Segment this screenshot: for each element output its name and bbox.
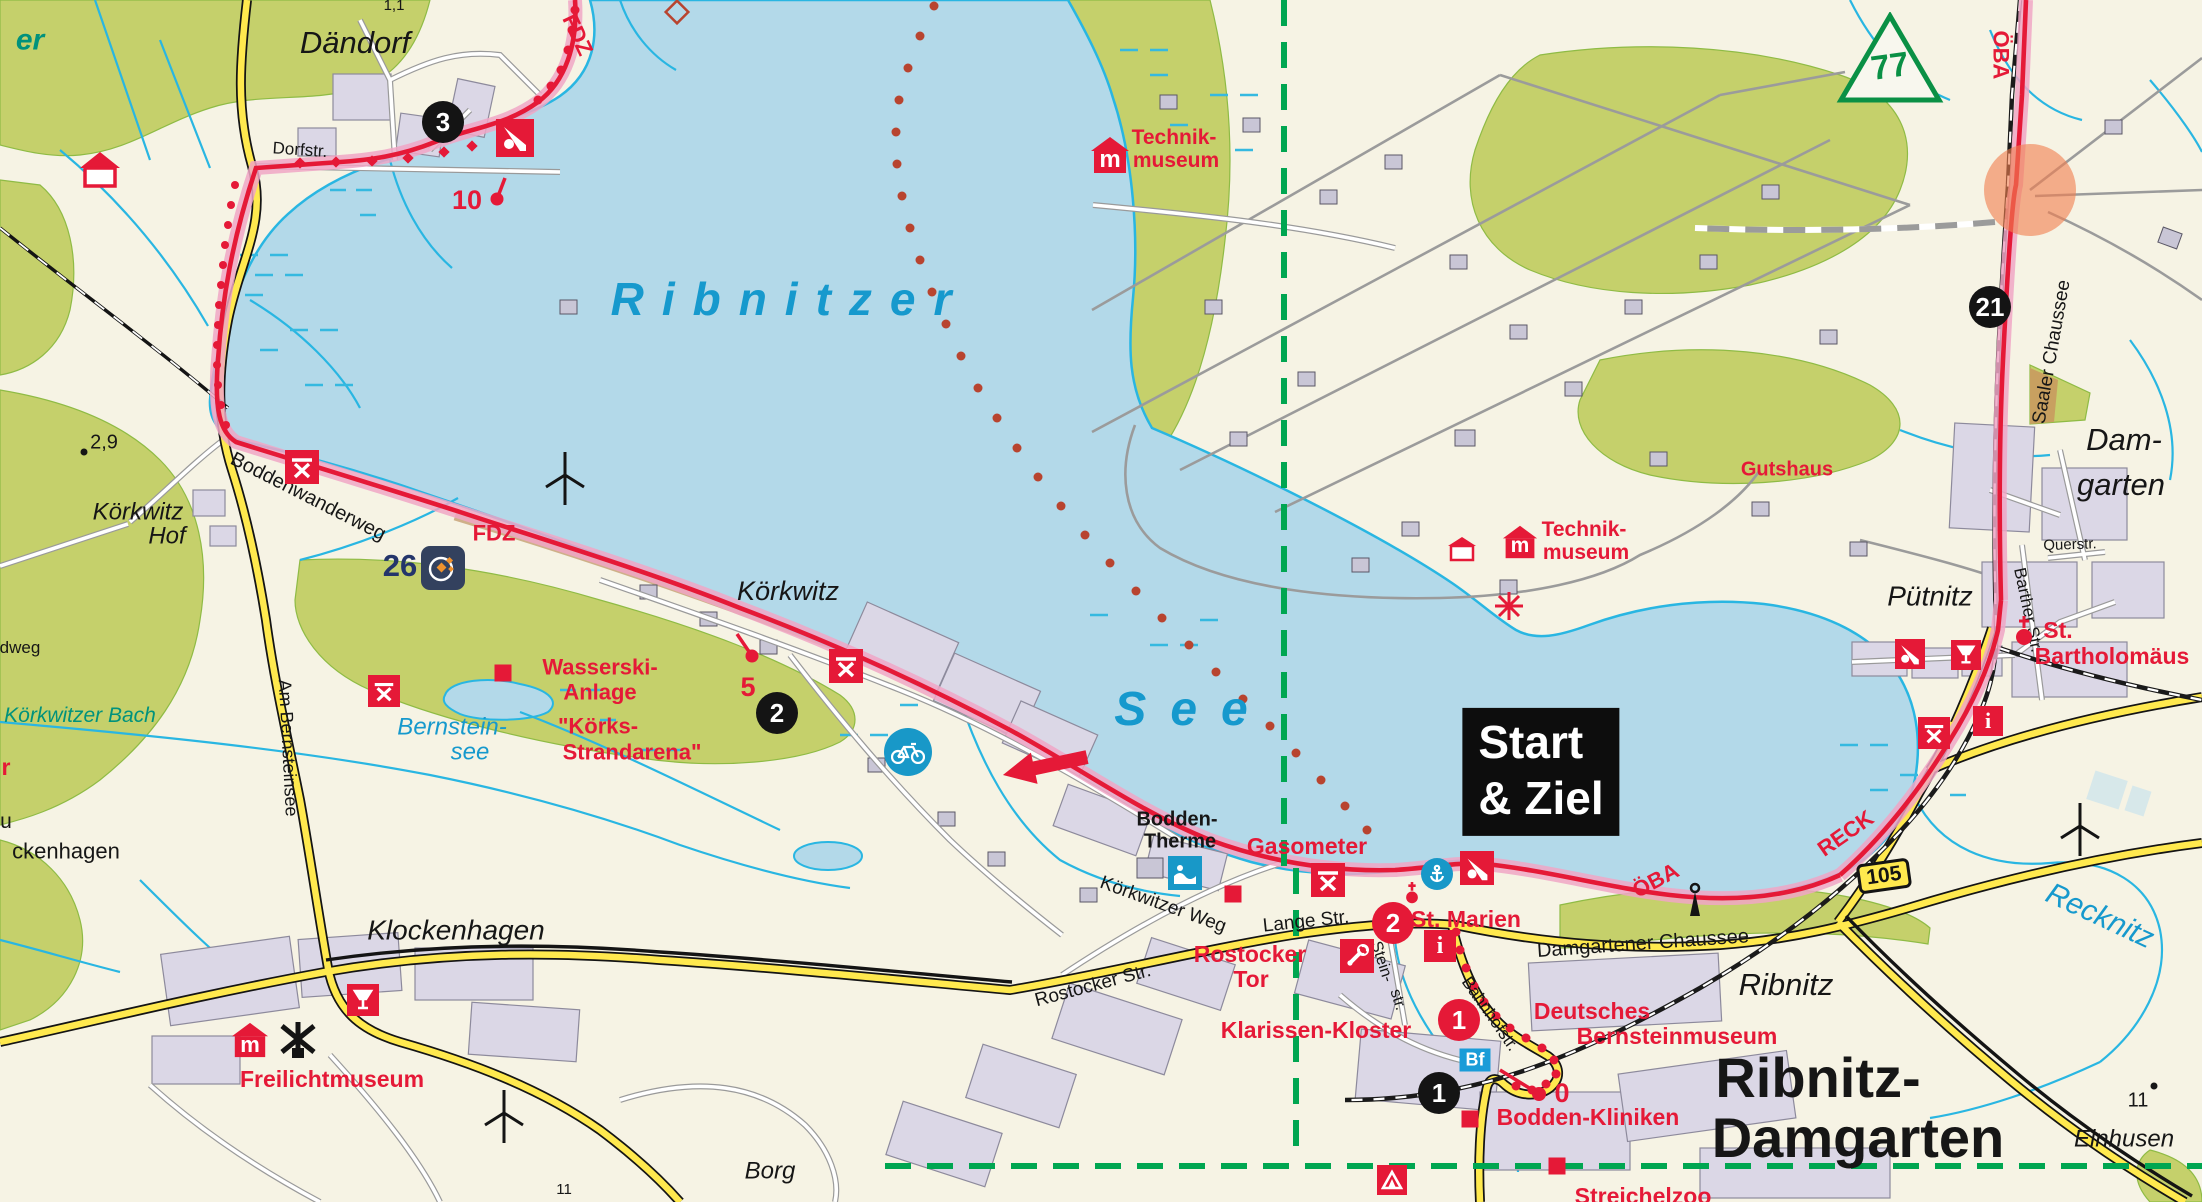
info-icon: i — [1973, 706, 2003, 736]
junction-highlight — [1984, 144, 2076, 236]
wet-areas — [2086, 770, 2151, 816]
route-fdz-mid: FDZ — [473, 523, 516, 546]
swimming-icon — [1168, 856, 1202, 890]
poi-streichelzoo: Streichelzoo — [1575, 1185, 1712, 1202]
poi-technikmuseum-a-2: museum — [1133, 150, 1219, 172]
poi-rostocker-tor-1: Rostocker — [1194, 943, 1306, 967]
route-oeba-top: ÖBA — [1989, 31, 2012, 80]
poi-bernsteinmuseum-1: Deutsches — [1534, 1000, 1650, 1024]
poi-wasserski-2: Anlage — [563, 682, 636, 705]
restaurant-icon — [347, 984, 379, 1016]
label-damgarten-2: garten — [2077, 469, 2165, 501]
poi-square — [495, 665, 512, 682]
node-marker-26: 26 — [383, 550, 417, 582]
label-ribnitz-damgarten-1: Ribnitz- — [1715, 1049, 1920, 1107]
station-badge-bf: Bf — [1460, 1049, 1491, 1072]
label-ribnitz: Ribnitz — [1739, 969, 1834, 1001]
poi-freilichtmuseum: Freilichtmuseum — [240, 1068, 424, 1092]
label-partial-dweg: dweg — [0, 639, 40, 657]
label-koerkwitz: Körkwitz — [737, 577, 839, 605]
water-slide-icon — [496, 119, 534, 157]
bike-repair-icon — [1340, 939, 1374, 973]
picnic-icon — [829, 649, 863, 683]
poi-rostocker-tor-2: Tor — [1233, 968, 1268, 992]
poi-square — [1462, 1111, 1479, 1128]
restaurant-icon — [1951, 640, 1981, 670]
route-marker-1-red: 1 — [1438, 999, 1480, 1041]
elevation-1-1: 1,1 — [384, 0, 405, 14]
poi-technikmuseum-b-1: Technik- — [1542, 519, 1627, 541]
poi-bodden-therme-2: Therme — [1144, 832, 1216, 853]
poi-st-bartholomaeus-2: Bartholomäus — [2035, 645, 2190, 669]
elevation-2-9: 2,9 — [90, 433, 118, 454]
label-ribnitz-damgarten-2: Damgarten — [1712, 1109, 2005, 1167]
route-triangle-77: 77 — [1835, 12, 1945, 104]
picnic-icon — [368, 675, 400, 707]
label-bernsteinsee-1: Bernstein- — [397, 716, 506, 741]
poi-technikmuseum-b-2: museum — [1543, 542, 1629, 564]
poi-gutshaus: Gutshaus — [1741, 460, 1833, 481]
windmill-icon — [282, 1022, 314, 1058]
poi-square — [1549, 1158, 1566, 1175]
poi-bernsteinmuseum-2: Bernsteinmuseum — [1577, 1025, 1778, 1049]
poi-st-bartholomaeus-1: St. — [2043, 619, 2072, 643]
label-ribnitzer-see-1: Ribnitzer — [611, 276, 970, 324]
picnic-icon — [1311, 863, 1345, 897]
poi-technikmuseum-a-1: Technik- — [1132, 127, 1217, 149]
poi-st-marien: St. Marien — [1411, 908, 1521, 932]
route-marker-3: 3 — [422, 101, 464, 143]
label-daendorf: Dändorf — [300, 27, 410, 59]
label-puetnitz: Pütnitz — [1887, 581, 1973, 610]
map-geometry — [0, 0, 2202, 1202]
label-damgarten-1: Dam- — [2086, 424, 2162, 456]
label-ribnitzer-see-2: See — [1114, 685, 1271, 735]
poi-square — [1225, 886, 1242, 903]
info-icon: i — [1424, 930, 1456, 962]
elevation-11-borg: 11 — [556, 1182, 572, 1198]
start-finish-line2: & Ziel — [1478, 770, 1603, 826]
poi-koerks-1: "Körks- — [558, 716, 638, 739]
street-dorfstr: Dorfstr. — [272, 139, 328, 160]
label-klockenhagen: Klockenhagen — [367, 915, 544, 944]
label-partial-u: u — [0, 811, 12, 833]
label-einhusen: Einhusen — [2074, 1128, 2174, 1153]
label-bernsteinsee-2: see — [451, 741, 490, 766]
picnic-icon — [285, 450, 319, 484]
red-house-icon — [78, 150, 122, 190]
label-borg: Borg — [745, 1160, 796, 1185]
route-marker-21: 21 — [1969, 286, 2011, 328]
viewpoint-star-icon — [1494, 591, 1524, 621]
water-slide-icon — [1895, 639, 1925, 669]
start-finish-box: Start & Ziel — [1462, 708, 1619, 836]
museum-icon: m — [230, 1021, 270, 1059]
museum-icon: m — [1501, 524, 1539, 560]
dark-sky-icon — [421, 546, 465, 590]
km-marker-10: 10 — [452, 186, 482, 214]
bicycle-icon — [884, 728, 932, 776]
picnic-icon — [1918, 717, 1950, 749]
route-marker-2-red: 2 — [1372, 902, 1414, 944]
label-partial-ckenhagen: ckenhagen — [12, 841, 120, 864]
church-icon — [2015, 616, 2033, 646]
barn-icon — [1447, 536, 1477, 562]
street-querstr: Querstr. — [2043, 536, 2097, 553]
pond — [794, 842, 862, 870]
route-marker-1-black: 1 — [1418, 1072, 1460, 1114]
church-icon — [1405, 882, 1419, 904]
label-partial-er: er — [16, 24, 44, 55]
km-marker-0: 0 — [1554, 1079, 1569, 1107]
elevation-11-east: 11 — [2128, 1091, 2149, 1112]
km-marker-5: 5 — [740, 673, 755, 701]
campground-icon — [1377, 1165, 1407, 1195]
poi-wasserski-1: Wasserski- — [542, 657, 657, 680]
poi-koerks-2: Strandarena" — [563, 742, 702, 765]
label-partial-r: r — [2, 756, 11, 780]
anchor-icon — [1421, 858, 1453, 890]
poi-bodden-therme-1: Bodden- — [1136, 810, 1217, 831]
label-koerkwitzer-bach: Körkwitzer Bach — [4, 705, 156, 727]
museum-icon: m — [1089, 135, 1131, 175]
water-slide-icon — [1460, 851, 1494, 885]
poi-bodden-kliniken: Bodden-Kliniken — [1497, 1106, 1680, 1130]
label-koerkwitz-hof-2: Hof — [148, 525, 185, 550]
poi-klarissen-kloster: Klarissen-Kloster — [1221, 1019, 1411, 1043]
poi-gasometer: Gasometer — [1247, 835, 1367, 859]
start-finish-line1: Start — [1478, 714, 1603, 770]
route-marker-2-black: 2 — [756, 692, 798, 734]
map-canvas: Ribnitzer See Bernstein- see Recknitz Kö… — [0, 0, 2202, 1202]
